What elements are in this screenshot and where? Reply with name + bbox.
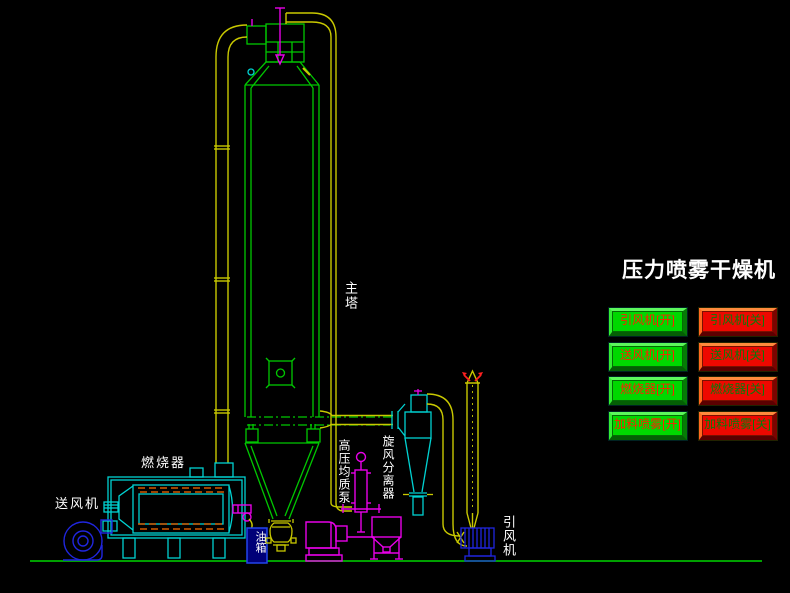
cyclone-exit-duct	[427, 394, 467, 546]
exhaust-arrows	[462, 372, 483, 381]
feed-hopper	[370, 517, 403, 559]
label-supply-fan: 送风机	[55, 497, 100, 511]
hmi-screen: 压力喷雾干燥机 主塔 燃烧器 送风机 油箱 高压均质泵 旋风分离器 引风机 引风…	[0, 0, 790, 593]
label-burner: 燃烧器	[141, 456, 186, 470]
label-high-pressure-pump: 高压均质泵	[337, 439, 351, 504]
feed-spray-off-button[interactable]: 加料喷雾[关]	[699, 412, 777, 440]
collector-pot	[266, 519, 296, 551]
cyclone-top-vent	[414, 389, 422, 395]
induced-fan-on-button[interactable]: 引风机[开]	[609, 308, 687, 336]
label-cyclone-separator: 旋风分离器	[381, 435, 395, 500]
hot-air-pipe	[214, 25, 247, 463]
spray-lance	[252, 8, 285, 64]
cyclone-separator	[398, 395, 431, 515]
exhaust-stack	[465, 371, 480, 528]
supply-fan	[63, 520, 112, 560]
page-title: 压力喷雾干燥机	[616, 254, 782, 284]
cyclone-inlet-flange	[392, 411, 398, 429]
process-diagram	[0, 0, 790, 593]
shoulder-valve	[248, 69, 254, 75]
induced-draft-fan	[461, 528, 495, 561]
feed-spray-on-button[interactable]: 加料喷雾[开]	[609, 412, 687, 440]
label-oil-tank: 油箱	[249, 531, 267, 553]
burner-off-button[interactable]: 燃烧器[关]	[699, 377, 777, 405]
supply-fan-on-button[interactable]: 送风机[开]	[609, 343, 687, 371]
burner	[103, 463, 245, 558]
supply-fan-off-button[interactable]: 送风机[关]	[699, 343, 777, 371]
label-main-tower: 主塔	[343, 281, 357, 311]
induced-fan-off-button[interactable]: 引风机[关]	[699, 308, 777, 336]
main-tower	[245, 24, 394, 519]
label-induced-fan: 引风机	[501, 515, 515, 557]
burner-on-button[interactable]: 燃烧器[开]	[609, 377, 687, 405]
